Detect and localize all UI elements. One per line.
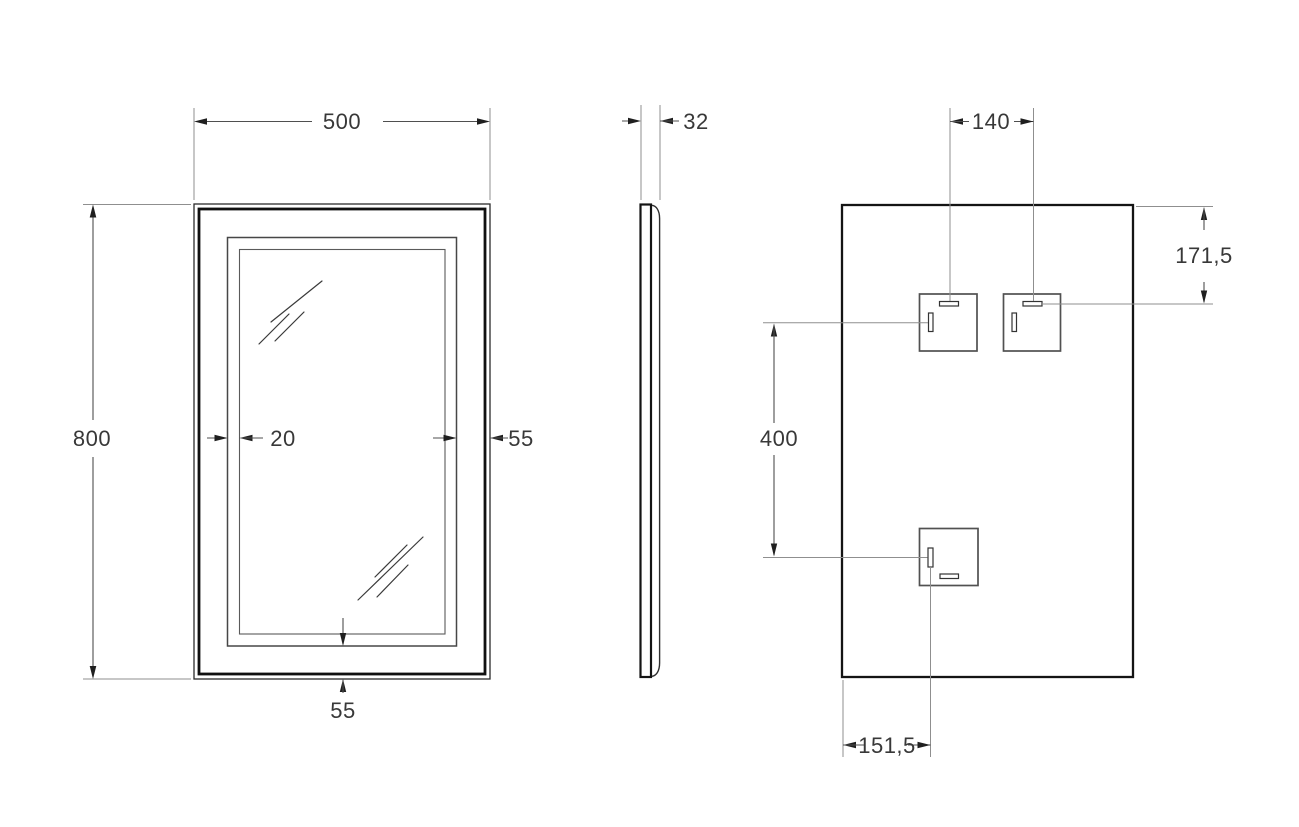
mirror-panel-profile xyxy=(641,205,652,678)
dim-top-to-bracket-label: 171,5 xyxy=(1175,243,1233,268)
dim-depth: 32 xyxy=(622,105,709,200)
bracket-slot-vertical xyxy=(929,313,934,332)
dim-led-offset: 20 xyxy=(207,426,296,451)
arrowhead-right-icon xyxy=(628,118,641,124)
arrowhead-up-icon xyxy=(90,205,97,218)
dim-height: 800 xyxy=(73,205,191,680)
bracket-slot-horizontal xyxy=(1023,302,1042,307)
bracket-slot-horizontal xyxy=(940,302,959,307)
dim-frame-bottom-label: 55 xyxy=(330,698,355,723)
back-panel xyxy=(842,205,1133,677)
side-view: 32 xyxy=(622,105,709,677)
drawing-canvas: 500 800 20 55 xyxy=(0,0,1299,827)
arrowhead-right-icon xyxy=(215,435,228,441)
arrowhead-right-icon xyxy=(1021,118,1034,125)
arrowhead-down-icon xyxy=(1201,291,1207,304)
front-view: 500 800 20 55 xyxy=(73,108,534,723)
technical-drawing: 500 800 20 55 xyxy=(0,0,1299,827)
dim-left-to-bracket-label: 151,5 xyxy=(858,733,916,758)
bracket-slot-vertical xyxy=(1012,313,1017,332)
arrowhead-down-icon xyxy=(90,666,97,679)
mounting-bracket-top-right xyxy=(1004,294,1061,351)
mounting-bracket-top-left xyxy=(920,294,978,351)
mirror-outer-edge xyxy=(194,204,490,679)
dim-depth-label: 32 xyxy=(683,109,708,134)
mounting-bracket-bottom xyxy=(920,529,979,586)
dim-led-offset-label: 20 xyxy=(270,426,295,451)
dim-width: 500 xyxy=(194,108,490,200)
led-band-outer-line xyxy=(228,238,457,647)
arrowhead-down-icon xyxy=(771,544,777,557)
bracket-slot-horizontal xyxy=(940,574,959,579)
mirror-frame-thick-line xyxy=(199,209,485,674)
mirror-reflection-hatch-bottom-icon xyxy=(358,537,423,600)
arrowhead-left-icon xyxy=(194,118,207,125)
dim-frame-side: 55 xyxy=(433,426,534,451)
back-view: 140 171,5 400 xyxy=(760,108,1233,758)
dim-frame-side-label: 55 xyxy=(508,426,533,451)
dim-bracket-spacing-label: 140 xyxy=(972,109,1010,134)
dim-height-label: 800 xyxy=(73,426,111,451)
mirror-backing-profile xyxy=(652,205,660,676)
dim-bracket-rows-label: 400 xyxy=(760,426,798,451)
dim-width-label: 500 xyxy=(323,109,361,134)
arrowhead-right-icon xyxy=(477,118,490,125)
arrowhead-down-icon xyxy=(340,633,346,646)
mirror-reflection-hatch-top-icon xyxy=(259,281,322,344)
arrowhead-right-icon xyxy=(918,742,931,748)
bracket-slot-vertical xyxy=(928,548,933,567)
arrowhead-right-icon xyxy=(444,435,457,441)
